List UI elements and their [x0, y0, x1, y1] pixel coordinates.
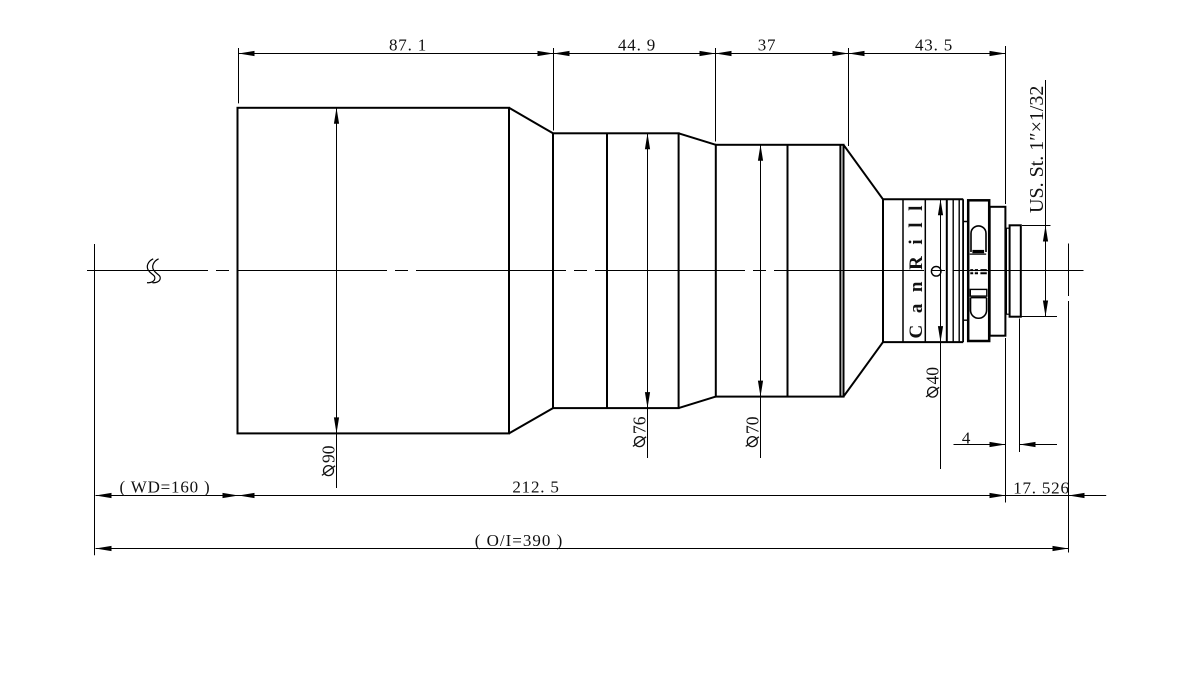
svg-text:90: 90: [319, 445, 339, 463]
svg-text:37: 37: [758, 36, 777, 55]
svg-text:212. 5: 212. 5: [512, 478, 559, 497]
svg-text:US. St. 1″×1/32: US. St. 1″×1/32: [1026, 86, 1048, 213]
svg-text:4: 4: [962, 429, 971, 448]
svg-text:70: 70: [742, 416, 762, 434]
svg-text:87. 1: 87. 1: [389, 36, 427, 55]
svg-text:( O/I=390 ): ( O/I=390 ): [475, 531, 564, 550]
svg-text:44. 9: 44. 9: [618, 36, 656, 55]
svg-text:17. 526: 17. 526: [1013, 479, 1070, 498]
svg-text:CanRill: CanRill: [906, 194, 927, 339]
svg-text:43. 5: 43. 5: [915, 36, 953, 55]
svg-text:40: 40: [923, 367, 943, 385]
svg-text:( WD=160 ): ( WD=160 ): [120, 478, 211, 497]
svg-text:76: 76: [630, 416, 650, 434]
